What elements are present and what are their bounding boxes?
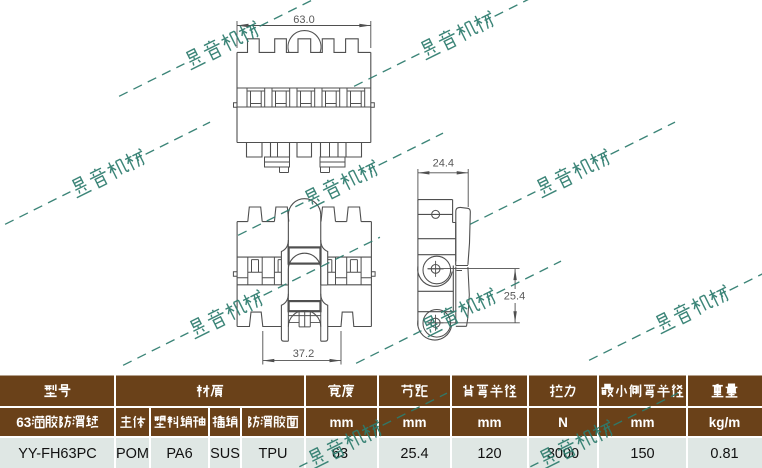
svg-text:N: N	[558, 415, 568, 430]
svg-text:POM: POM	[116, 446, 149, 462]
svg-text:0.81: 0.81	[710, 446, 738, 462]
svg-text:63.0: 63.0	[293, 14, 314, 26]
svg-text:PA6: PA6	[166, 446, 192, 462]
svg-text:25.4: 25.4	[400, 446, 428, 462]
svg-text:120: 120	[477, 446, 501, 462]
svg-text:mm: mm	[477, 415, 501, 430]
svg-text:mm: mm	[402, 415, 426, 430]
svg-text:25.4: 25.4	[504, 291, 525, 303]
svg-text:63: 63	[16, 415, 32, 430]
svg-text:mm: mm	[329, 415, 353, 430]
svg-text:mm: mm	[630, 415, 654, 430]
svg-text:kg/m: kg/m	[709, 415, 741, 430]
svg-text:24.4: 24.4	[433, 158, 454, 170]
svg-text:TPU: TPU	[259, 446, 288, 462]
svg-text:SUS: SUS	[210, 446, 240, 462]
svg-text:150: 150	[630, 446, 654, 462]
svg-text:YY-FH63PC: YY-FH63PC	[18, 446, 96, 462]
svg-text:37.2: 37.2	[293, 348, 314, 360]
